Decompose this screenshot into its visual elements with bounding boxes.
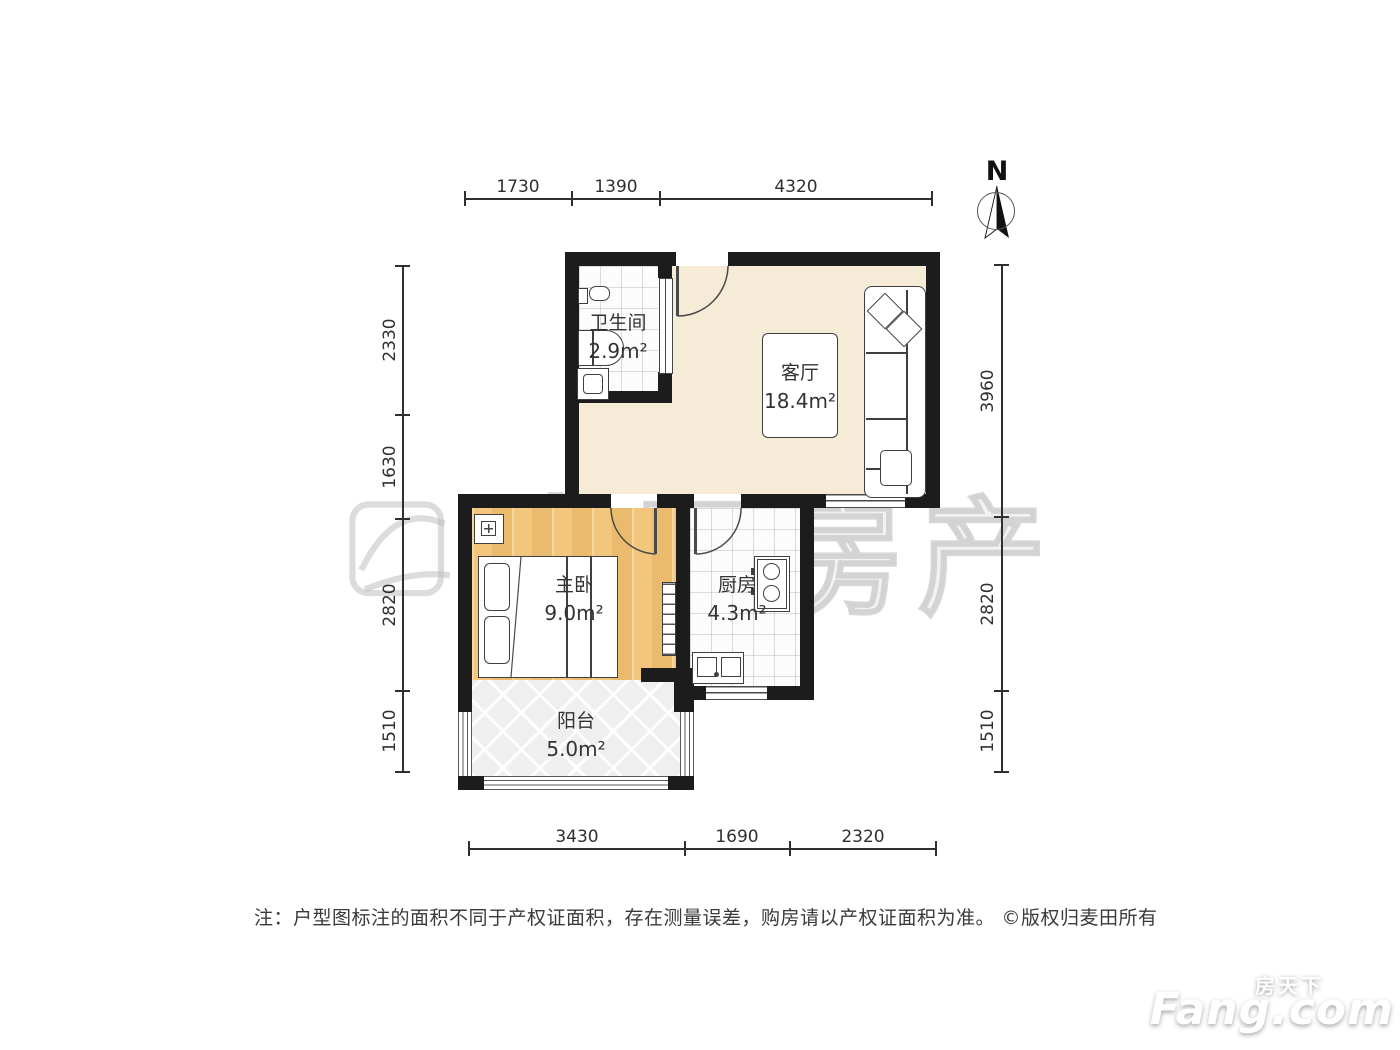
wall bbox=[458, 494, 472, 712]
dim-tick bbox=[994, 264, 1009, 266]
kitchen-window bbox=[706, 686, 767, 700]
wall bbox=[728, 252, 940, 266]
footer-note: 注：户型图标注的面积不同于产权证面积，存在测量误差，购房请以产权证面积为准。 ©… bbox=[254, 903, 1158, 930]
dim-label: 4320 bbox=[751, 177, 841, 197]
compass-circle bbox=[977, 192, 1015, 230]
wall bbox=[458, 776, 484, 790]
dim-label: 1510 bbox=[978, 686, 998, 776]
dim-label: 1390 bbox=[571, 177, 661, 197]
balcony-window-left bbox=[458, 712, 472, 776]
hallway-floor bbox=[579, 403, 672, 494]
dim-tick bbox=[395, 265, 410, 267]
balcony-window-right bbox=[680, 712, 694, 776]
room-name: 主卧 bbox=[524, 572, 624, 599]
radiator bbox=[662, 582, 676, 656]
wall bbox=[674, 682, 694, 712]
dim-label: 3430 bbox=[532, 827, 622, 847]
dim-tick bbox=[994, 516, 1009, 518]
room-area: 9.0m² bbox=[524, 599, 624, 627]
wall bbox=[767, 686, 814, 700]
dim-tick bbox=[931, 191, 933, 206]
room-area: 4.3m² bbox=[687, 599, 787, 627]
bathroom-sink-icon bbox=[583, 374, 603, 394]
wall bbox=[926, 252, 940, 508]
wall bbox=[458, 494, 611, 508]
dim-tick bbox=[935, 841, 937, 856]
dimension-line-top bbox=[465, 198, 932, 200]
washing-machine-icon bbox=[481, 521, 496, 536]
room-label-kitchen: 厨房 4.3m² bbox=[687, 572, 787, 627]
dim-tick bbox=[789, 841, 791, 856]
dim-label: 2320 bbox=[818, 827, 908, 847]
room-area: 2.9m² bbox=[568, 337, 668, 365]
wall bbox=[658, 252, 672, 278]
dim-tick bbox=[468, 841, 470, 856]
room-label-bathroom: 卫生间 2.9m² bbox=[568, 310, 668, 365]
room-area: 18.4m² bbox=[750, 387, 850, 415]
sofa-ottoman bbox=[880, 450, 912, 486]
dim-label: 1730 bbox=[473, 177, 563, 197]
balcony-window-bottom bbox=[484, 776, 668, 790]
dim-label: 1510 bbox=[380, 686, 400, 776]
bed-pillow bbox=[484, 616, 510, 664]
room-name: 阳台 bbox=[526, 708, 626, 735]
room-label-living: 客厅 18.4m² bbox=[750, 360, 850, 415]
fang-logo-en: Fang.com bbox=[1150, 984, 1394, 1035]
dim-tick bbox=[395, 518, 410, 520]
room-name: 卫生间 bbox=[568, 310, 668, 337]
bed-pillow bbox=[484, 563, 510, 611]
room-label-bedroom: 主卧 9.0m² bbox=[524, 572, 624, 627]
fang-logo: 房天下 Fang.com bbox=[1182, 970, 1394, 1042]
dim-label: 2820 bbox=[978, 559, 998, 649]
dim-label: 3960 bbox=[978, 346, 998, 436]
room-label-balcony: 阳台 5.0m² bbox=[526, 708, 626, 763]
sofa bbox=[866, 352, 906, 354]
kitchen-sink-icon bbox=[721, 657, 741, 677]
dim-tick bbox=[464, 191, 466, 206]
floorplan-canvas: 麦田房产 bbox=[0, 0, 1400, 1050]
dimension-line-bottom bbox=[469, 848, 936, 850]
dim-label: 1630 bbox=[380, 422, 400, 512]
compass-north-label: N bbox=[975, 156, 1019, 187]
sofa bbox=[866, 418, 906, 420]
kitchen-faucet-icon bbox=[714, 672, 719, 677]
toilet-icon bbox=[578, 288, 588, 304]
dim-label: 2820 bbox=[380, 560, 400, 650]
room-name: 厨房 bbox=[687, 572, 787, 599]
dimension-line-right bbox=[1001, 265, 1003, 772]
toilet-icon bbox=[589, 286, 610, 301]
room-name: 客厅 bbox=[750, 360, 850, 387]
dim-label: 1690 bbox=[692, 827, 782, 847]
wall bbox=[800, 494, 814, 700]
dim-tick bbox=[684, 841, 686, 856]
wall bbox=[668, 776, 694, 790]
room-area: 5.0m² bbox=[526, 735, 626, 763]
dim-label: 2330 bbox=[380, 295, 400, 385]
dim-tick bbox=[395, 414, 410, 416]
